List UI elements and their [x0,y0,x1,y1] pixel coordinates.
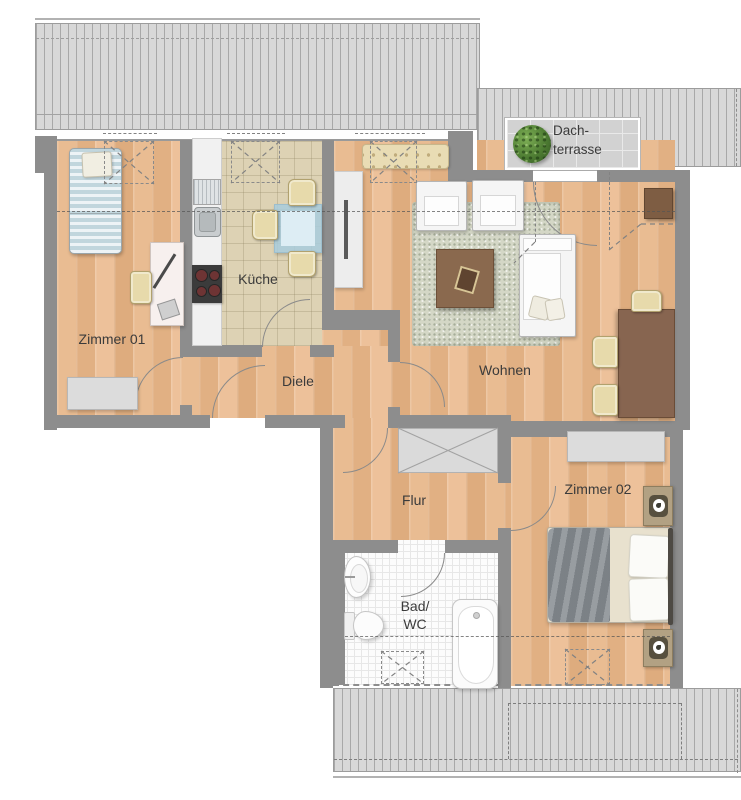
apartment-bottom-dashed-edge [333,684,683,686]
wall-jog [448,131,473,182]
wall-flur-top-a [333,415,340,428]
wall-diele-wohnen-upper [388,330,400,362]
wohnen-sideboard [334,171,363,288]
wall-left-top [35,136,57,173]
wall-top-right-b [597,170,690,182]
sink-basin [199,212,216,232]
wall-kueche-wohnen [322,140,334,312]
side-table [644,188,673,219]
label-terrasse-line1: Dach- [553,123,613,138]
burner [196,286,207,297]
height-line-terrace-left [535,182,536,242]
terrace-door-opening [533,170,597,182]
desk-chair [130,271,152,304]
roof-dashed-edge [736,89,737,166]
roof-dash-rect-left [508,703,509,759]
sideboard-handle [344,200,348,259]
wall-zimmer02-left-a [498,428,511,483]
nightstand-bottom [643,629,673,667]
label-terrasse-line2: terrasse [553,142,623,157]
lamp-dot [656,503,661,508]
sofa-armrest-top [523,238,572,251]
roof-edge-line-bottom [333,776,741,778]
dining-chair-left1 [592,336,618,368]
bed-blanket [548,528,610,622]
skylight-zimmer02 [565,649,610,685]
knee-wall-strip [57,130,450,139]
label-bad-line2: WC [385,616,445,632]
dining-table [618,309,675,418]
desk-laptop [157,298,180,320]
roof-dash-rect-right [681,703,682,759]
glass-table-top [281,211,315,246]
armchair-right [472,180,524,231]
white-gap-terrace-side [473,130,477,170]
zimmer01-sideboard [67,377,138,410]
label-zimmer01: Zimmer 01 [62,331,162,347]
bed-headboard [668,528,673,625]
height-line-top [57,211,675,212]
window-dash-kueche [227,133,285,134]
wall-flur-left [320,415,333,688]
bed-pillow-bottom [628,577,669,621]
roof-hatch-top [35,23,480,130]
sofa [519,234,576,337]
lamp-dot [656,645,661,650]
skylight-kueche [231,141,280,183]
roof-dash-rect-top [508,703,681,704]
wall-bad-top-b [445,540,511,553]
roof-dash-line-low [334,759,738,760]
label-wohnen: Wohnen [460,362,550,378]
skylight-wohnen [370,141,417,183]
wall-flur-top-b [388,415,511,428]
kitchen-counter [192,138,222,346]
bathtub [452,599,498,689]
kitchen-chair-top [288,179,316,206]
floor-plan: Zimmer 01 Küche Diele Wohnen Flur Zimmer… [0,0,741,800]
skylight-zimmer01 [104,141,154,184]
dining-chair-top [631,290,662,312]
label-diele: Diele [273,373,323,389]
roof-inner-line [36,114,479,115]
wall-bad-top-a [333,540,398,553]
nightstand-top [643,486,673,526]
basin-bowl [350,564,368,593]
wall-right-outer [675,182,690,430]
bed-fold-line [70,213,121,214]
sofa-pillow [544,298,565,322]
tub-drain [473,612,480,619]
window-dash-wohnen [355,133,425,134]
armchair-left [416,181,467,231]
basin-tap [345,576,355,578]
desk-lamp [153,253,176,288]
wall-kueche-bottom-a [180,345,262,357]
dining-chair-left2 [592,384,618,416]
kitchen-chair-left [252,210,278,240]
burner [195,269,208,282]
wardrobe [567,431,665,462]
skylight-bad [381,651,424,684]
height-line-terrace-right [609,172,610,250]
bed-pillow-top [628,534,670,579]
wall-diele-wohnen-chunk [322,310,400,330]
window-dash-zimmer01 [103,133,157,134]
wall-kueche-bottom-b [310,345,334,357]
coffee-table-book [454,266,480,295]
roof-edge-line-top [35,18,480,20]
roof-dash-line [36,38,479,39]
height-line-bottom [345,636,670,637]
label-kueche: Küche [218,271,298,287]
wall-zimmer01-diele [180,405,192,428]
plant-texture [513,125,551,163]
roof-hatch-bottom [333,688,741,772]
label-bad-line1: Bad/ [385,598,445,614]
wall-left [44,173,57,430]
desk [150,242,184,326]
coffee-table [436,249,494,308]
built-in-closet [398,428,498,473]
label-zimmer02: Zimmer 02 [552,481,644,497]
label-flur: Flur [389,492,439,508]
roof-dashed-edge-right [737,689,738,773]
drainboard [193,179,221,205]
